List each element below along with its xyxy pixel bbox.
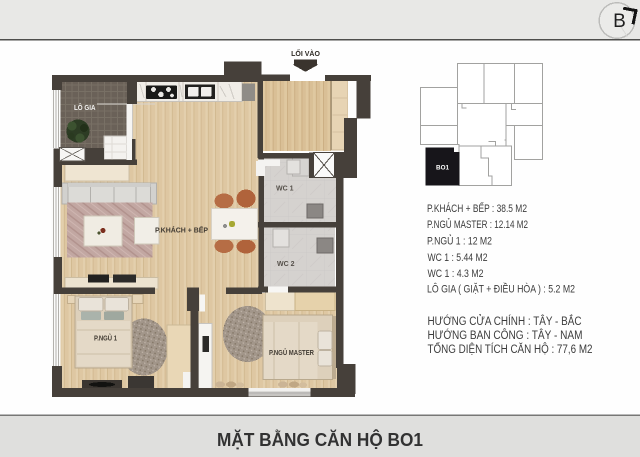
svg-text:TỔNG DIỆN TÍCH CĂN HỘ : 77,6 M: TỔNG DIỆN TÍCH CĂN HỘ : 77,6 M2 bbox=[428, 343, 593, 356]
svg-text:P.NGỦ MASTER : 12.14 M2: P.NGỦ MASTER : 12.14 M2 bbox=[427, 218, 528, 231]
svg-text:HƯỚNG CỬA CHÍNH : TÂY - BẮC: HƯỚNG CỬA CHÍNH : TÂY - BẮC bbox=[428, 315, 582, 328]
svg-text:WC 1 : 5.44 M2: WC 1 : 5.44 M2 bbox=[428, 252, 488, 264]
svg-text:P.KHÁCH + BẾP : 38.5 M2: P.KHÁCH + BẾP : 38.5 M2 bbox=[427, 202, 527, 215]
svg-text:LÔ GIA: LÔ GIA bbox=[74, 103, 96, 112]
svg-text:P.KHÁCH + BẾP: P.KHÁCH + BẾP bbox=[155, 225, 208, 235]
svg-text:P.NGỦ 1: P.NGỦ 1 bbox=[94, 334, 117, 343]
svg-text:P.NGỦ 1 : 12 M2: P.NGỦ 1 : 12 M2 bbox=[427, 235, 492, 248]
svg-text:LÔ GIA ( GIẶT + ĐIỀU HÒA ) : 5: LÔ GIA ( GIẶT + ĐIỀU HÒA ) : 5.2 M2 bbox=[427, 283, 575, 296]
svg-text:WC 1 : 4.3 M2: WC 1 : 4.3 M2 bbox=[428, 268, 484, 280]
svg-text:HƯỚNG BAN CÔNG : TÂY - NAM: HƯỚNG BAN CÔNG : TÂY - NAM bbox=[428, 329, 583, 342]
svg-text:B: B bbox=[613, 11, 626, 32]
svg-text:WC 1: WC 1 bbox=[276, 186, 294, 193]
svg-text:MẶT BẰNG CĂN HỘ BO1: MẶT BẰNG CĂN HỘ BO1 bbox=[217, 429, 423, 450]
svg-text:WC 2: WC 2 bbox=[277, 261, 295, 268]
svg-text:P.NGỦ MASTER: P.NGỦ MASTER bbox=[269, 348, 314, 357]
svg-text:BO1: BO1 bbox=[436, 165, 449, 172]
